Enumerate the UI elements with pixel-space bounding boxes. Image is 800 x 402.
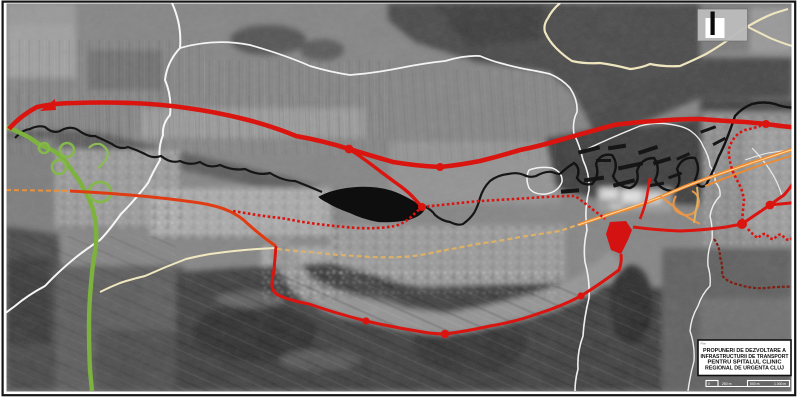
svg-text:0: 0 xyxy=(708,382,710,386)
svg-text:500 m: 500 m xyxy=(750,382,760,386)
svg-text:1.000 m: 1.000 m xyxy=(774,382,786,386)
svg-text:250 m: 250 m xyxy=(722,382,732,386)
svg-text:REGIONAL DE URGENTA CLUJ: REGIONAL DE URGENTA CLUJ xyxy=(705,365,784,371)
svg-text:Plan: Plan xyxy=(701,342,707,346)
